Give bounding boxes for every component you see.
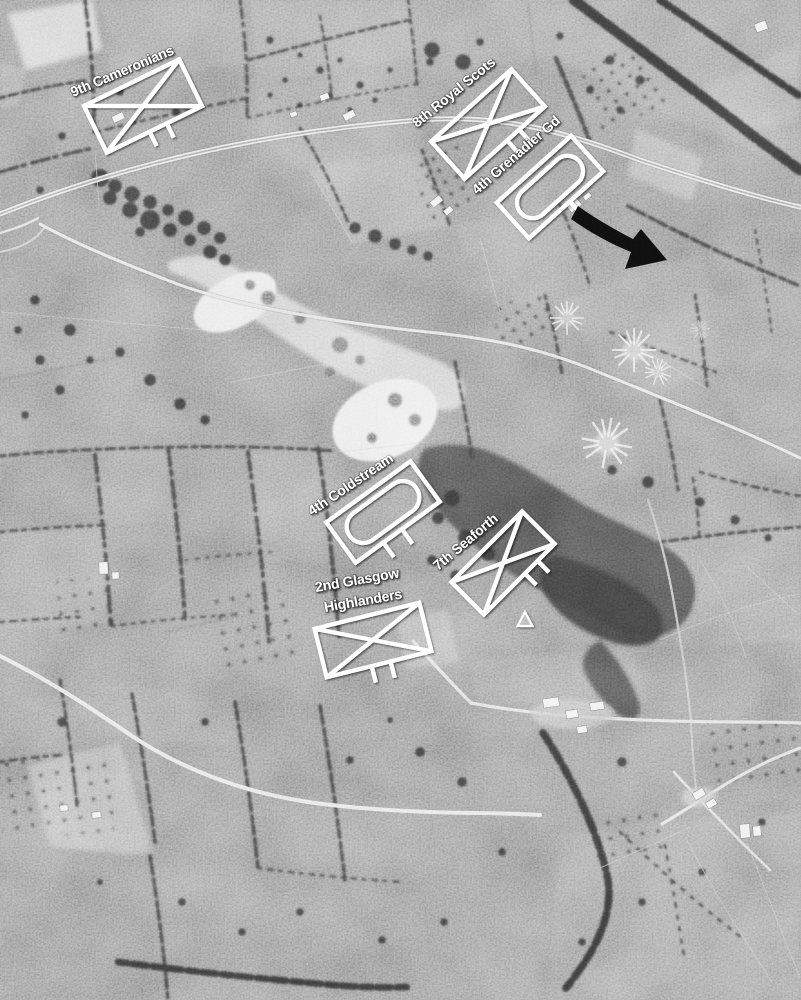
annotated-aerial-photo: 9th Cameronians8th Royal Scots4th Grenad… xyxy=(0,0,801,1000)
photo-svg: 9th Cameronians8th Royal Scots4th Grenad… xyxy=(0,0,801,1000)
fields xyxy=(0,0,801,1000)
